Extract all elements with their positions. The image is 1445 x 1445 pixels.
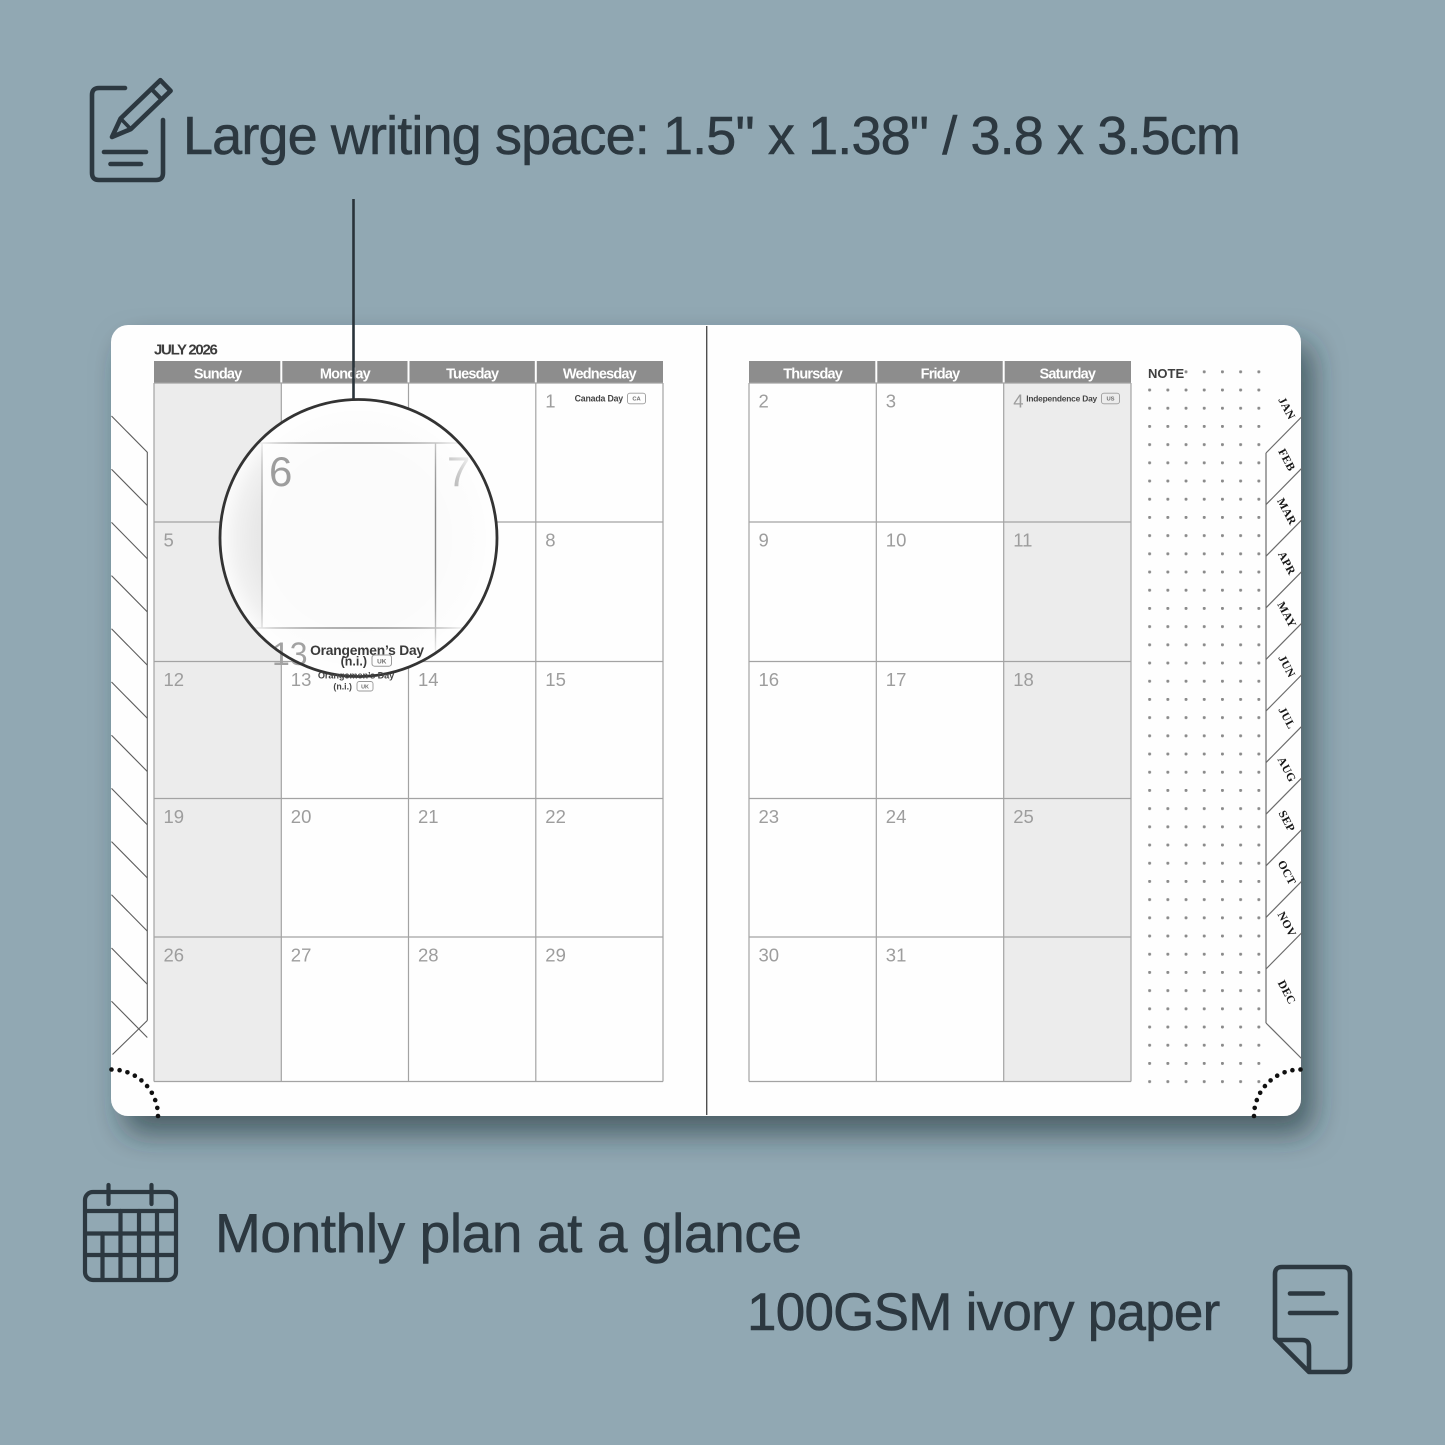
- svg-text:30: 30: [759, 945, 780, 966]
- svg-text:Monday: Monday: [320, 367, 371, 383]
- svg-text:13: 13: [272, 636, 308, 672]
- svg-text:25: 25: [1013, 806, 1034, 827]
- svg-text:13: 13: [291, 669, 312, 690]
- svg-text:1: 1: [545, 391, 555, 412]
- svg-text:29: 29: [545, 945, 566, 966]
- svg-text:Tuesday: Tuesday: [446, 367, 499, 383]
- svg-text:6: 6: [269, 448, 292, 495]
- svg-text:8: 8: [545, 530, 555, 551]
- svg-text:28: 28: [418, 945, 439, 966]
- svg-text:Orangemen’s Day: Orangemen’s Day: [310, 643, 424, 658]
- svg-text:10: 10: [886, 530, 907, 551]
- svg-text:15: 15: [545, 669, 566, 690]
- svg-text:JULY 2026: JULY 2026: [154, 342, 217, 359]
- svg-text:(n.i.): (n.i.): [341, 655, 367, 669]
- svg-text:26: 26: [164, 945, 185, 966]
- svg-text:Sunday: Sunday: [194, 367, 242, 383]
- svg-text:31: 31: [886, 945, 907, 966]
- svg-text:18: 18: [1013, 669, 1034, 690]
- svg-text:US: US: [1106, 396, 1114, 402]
- svg-text:Orangemen’s Day: Orangemen’s Day: [318, 671, 395, 681]
- svg-text:NOTE: NOTE: [1148, 366, 1184, 381]
- svg-text:2: 2: [759, 391, 769, 412]
- svg-text:Wednesday: Wednesday: [563, 367, 637, 383]
- svg-text:Friday: Friday: [921, 367, 960, 383]
- svg-text:27: 27: [291, 945, 312, 966]
- svg-text:Saturday: Saturday: [1040, 367, 1096, 383]
- svg-text:20: 20: [291, 806, 312, 827]
- svg-text:24: 24: [886, 806, 907, 827]
- svg-text:9: 9: [759, 530, 769, 551]
- svg-text:UK: UK: [361, 685, 369, 691]
- svg-text:11: 11: [1013, 530, 1032, 551]
- svg-text:Thursday: Thursday: [783, 367, 843, 383]
- svg-text:(n.i.): (n.i.): [333, 682, 352, 692]
- svg-text:12: 12: [164, 669, 185, 690]
- svg-text:5: 5: [164, 530, 174, 551]
- svg-text:3: 3: [886, 391, 896, 412]
- svg-text:Independence Day: Independence Day: [1026, 394, 1097, 404]
- svg-text:21: 21: [418, 806, 439, 827]
- svg-text:17: 17: [886, 669, 907, 690]
- svg-text:16: 16: [759, 669, 780, 690]
- svg-text:4: 4: [1013, 391, 1023, 412]
- svg-text:19: 19: [164, 806, 185, 827]
- svg-text:14: 14: [418, 669, 439, 690]
- svg-text:CA: CA: [632, 396, 641, 402]
- svg-text:Canada Day: Canada Day: [575, 394, 624, 404]
- svg-text:22: 22: [545, 806, 566, 827]
- svg-text:23: 23: [759, 806, 780, 827]
- svg-text:UK: UK: [377, 659, 387, 666]
